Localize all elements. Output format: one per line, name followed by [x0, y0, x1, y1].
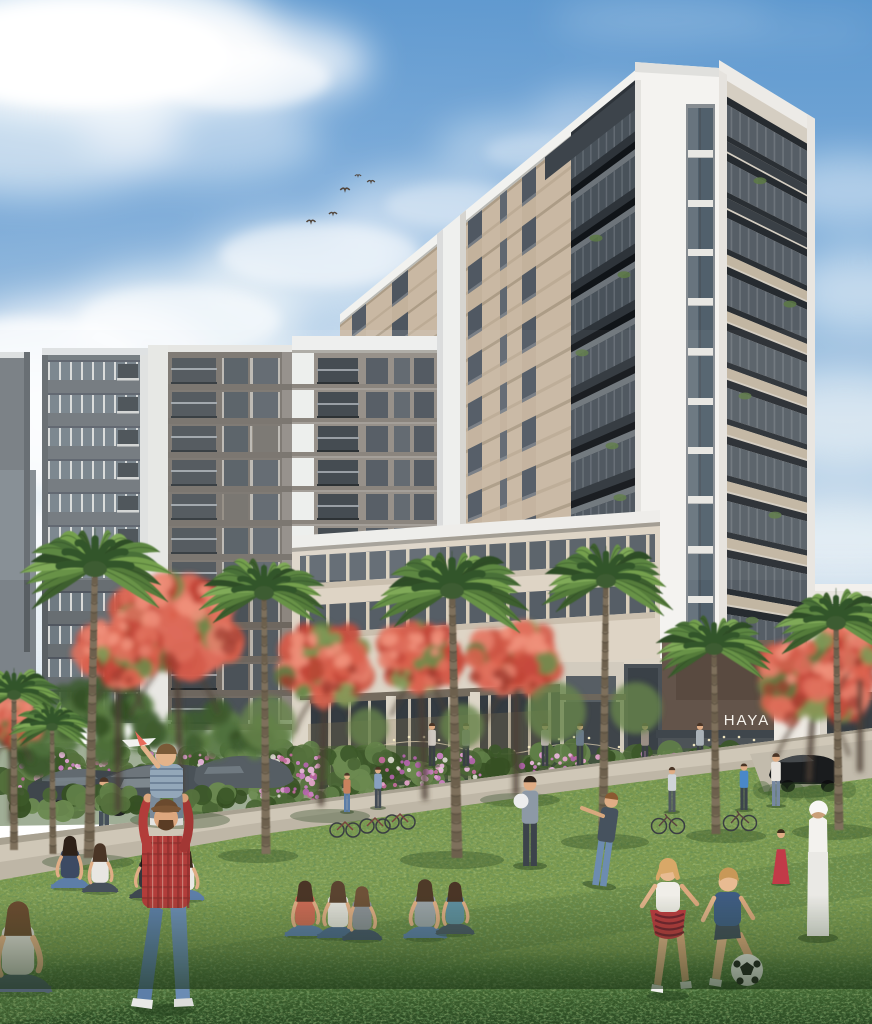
svg-text:HAYA: HAYA: [724, 712, 771, 729]
